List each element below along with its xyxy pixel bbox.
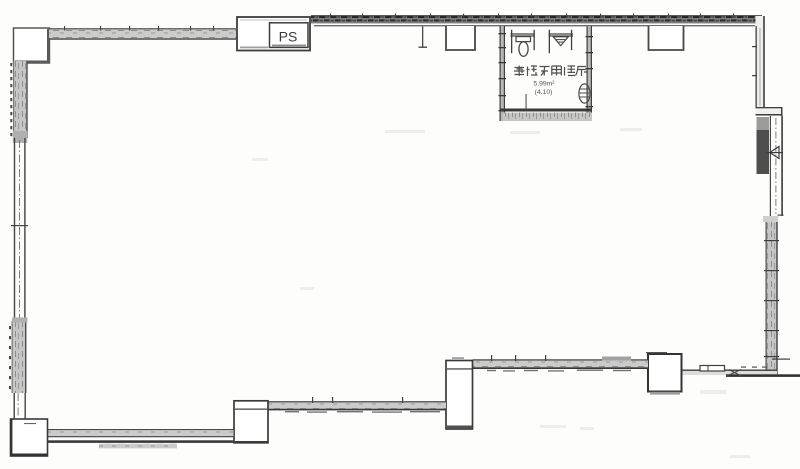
svg-text:PS: PS <box>279 29 298 45</box>
svg-text:(4.10): (4.10) <box>535 89 553 96</box>
svg-text:5.99m²: 5.99m² <box>533 81 555 88</box>
